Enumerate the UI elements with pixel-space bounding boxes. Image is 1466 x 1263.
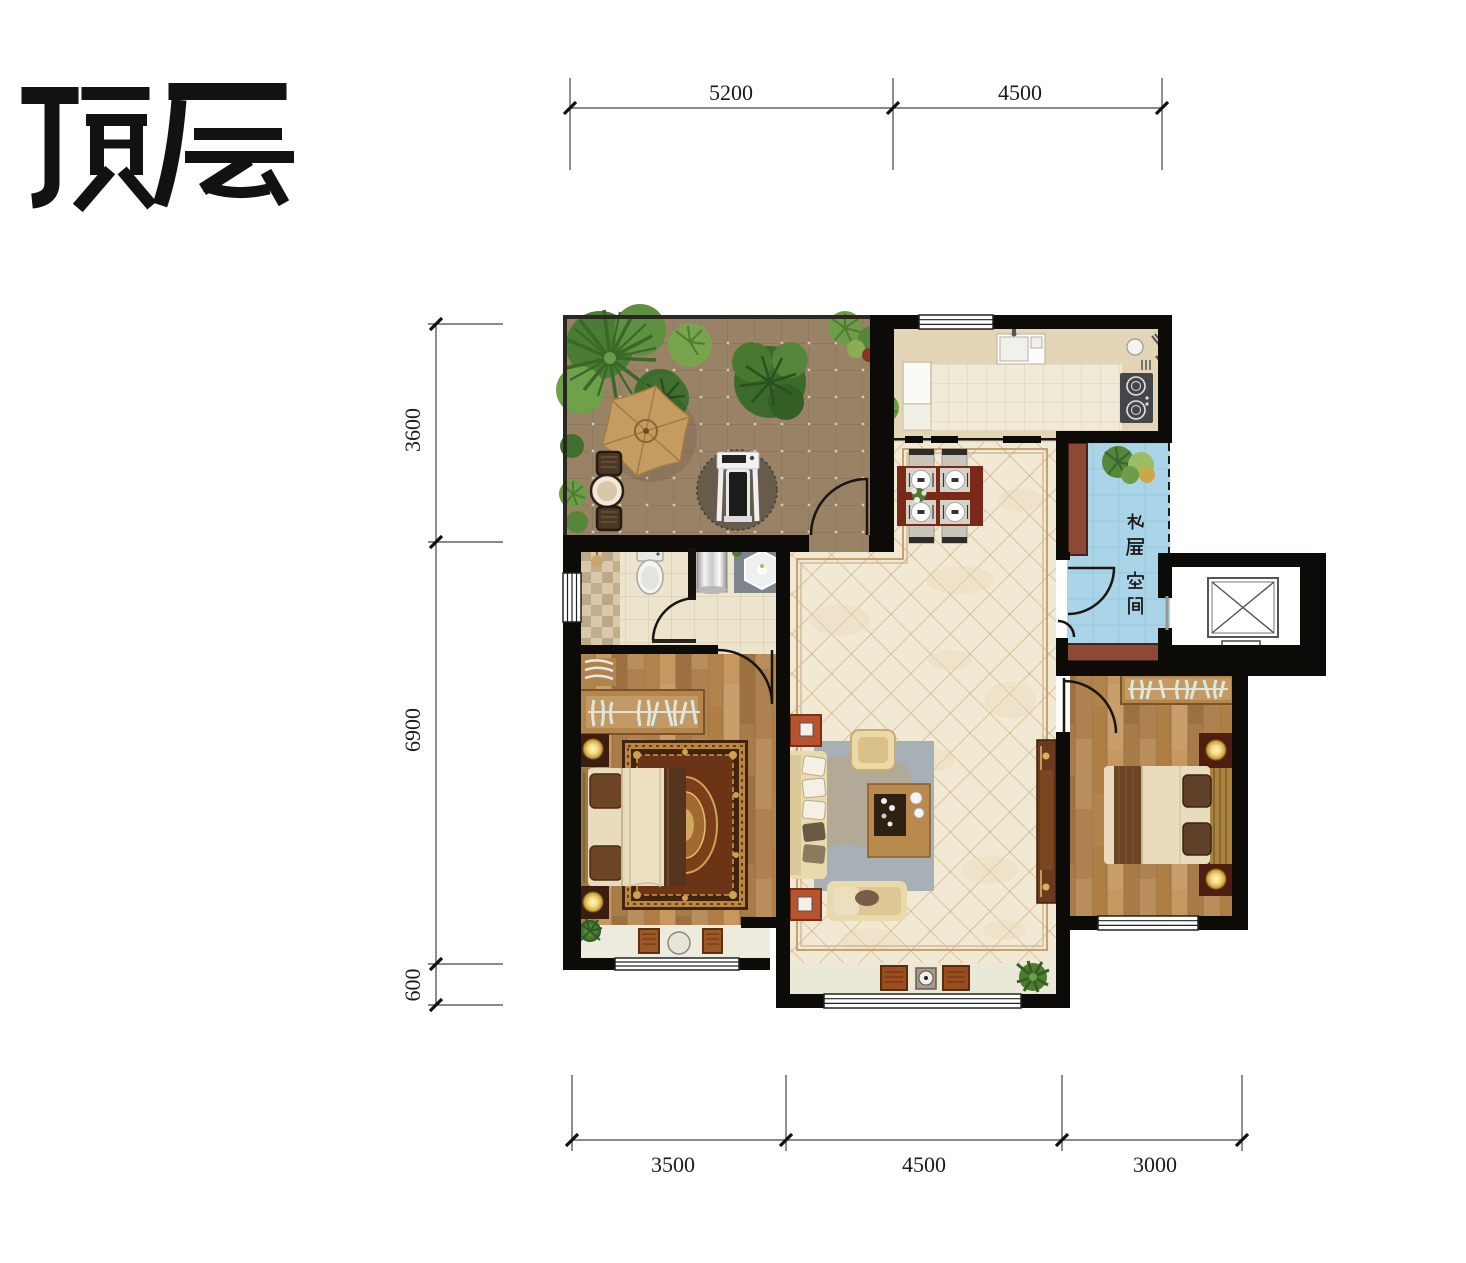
svg-text:3000: 3000 bbox=[1133, 1152, 1177, 1177]
svg-text:4500: 4500 bbox=[902, 1152, 946, 1177]
svg-text:5200: 5200 bbox=[709, 80, 753, 105]
svg-text:3500: 3500 bbox=[651, 1152, 695, 1177]
svg-text:600: 600 bbox=[400, 969, 425, 1002]
svg-text:3600: 3600 bbox=[400, 408, 425, 452]
svg-text:6900: 6900 bbox=[400, 708, 425, 752]
svg-text:4500: 4500 bbox=[998, 80, 1042, 105]
